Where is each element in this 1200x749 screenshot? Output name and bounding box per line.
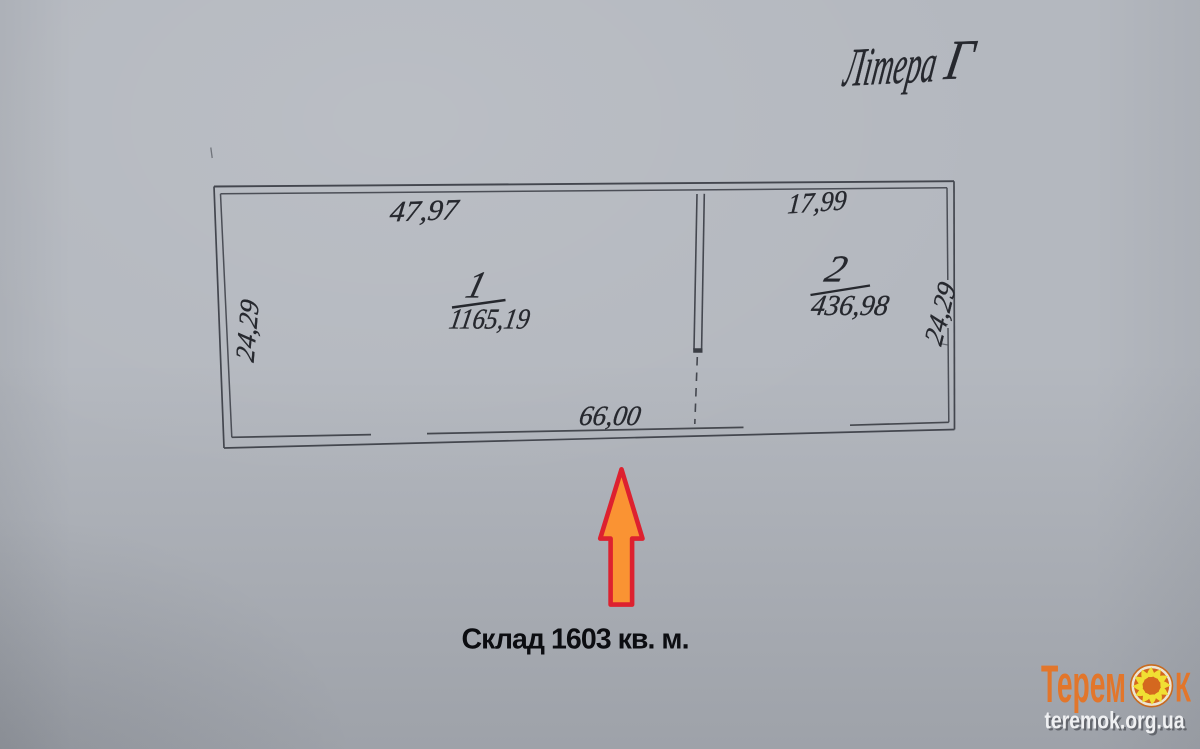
svg-text:2: 2	[821, 249, 852, 290]
svg-text:47,97: 47,97	[388, 194, 461, 228]
svg-text:1: 1	[462, 265, 491, 306]
svg-text:Терем: Терем	[1041, 655, 1126, 714]
svg-text:Склад 1603 кв. м.: Склад 1603 кв. м.	[462, 624, 690, 656]
svg-text:К: К	[1175, 664, 1191, 711]
svg-text:24,29: 24,29	[919, 277, 962, 349]
svg-text:1165,19: 1165,19	[447, 304, 533, 336]
svg-text:24,29: 24,29	[230, 296, 265, 364]
svg-text:Літера: Літера	[839, 32, 942, 98]
svg-text:436,98: 436,98	[809, 290, 892, 322]
svg-text:17,99: 17,99	[786, 185, 848, 220]
svg-text:teremok.org.ua: teremok.org.ua	[1045, 708, 1186, 735]
svg-text:Г: Г	[940, 29, 980, 92]
svg-text:66,00: 66,00	[577, 401, 643, 432]
